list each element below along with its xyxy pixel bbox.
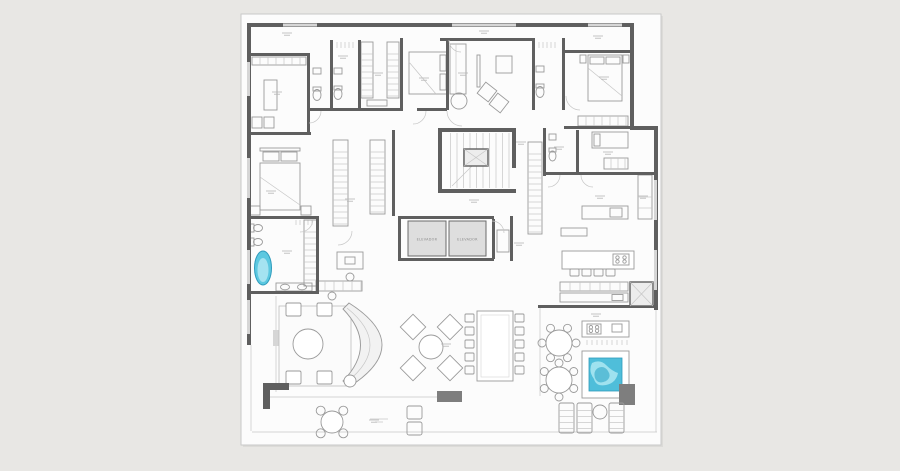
planter — [437, 391, 462, 402]
wall-part — [307, 53, 310, 132]
dining-table — [477, 311, 513, 381]
wall-part — [446, 40, 449, 110]
wall-family-top — [440, 38, 532, 41]
wall-bed-bottom — [247, 216, 319, 219]
stair-shaft — [464, 149, 488, 166]
wall-stair — [512, 128, 516, 168]
wall-wardrobe — [392, 130, 395, 216]
window — [654, 180, 657, 220]
round-table — [419, 335, 443, 359]
wall-part — [532, 38, 535, 110]
wall-elevator — [398, 219, 401, 261]
door-slider — [273, 330, 279, 346]
wall-balcony — [247, 53, 309, 56]
elevator-label: ELEVADOR — [417, 238, 438, 242]
wall-elevator — [398, 216, 494, 219]
window — [247, 158, 250, 198]
armchair — [286, 303, 301, 316]
wall-part — [330, 40, 333, 110]
side-table — [344, 375, 356, 387]
wall-balcony — [564, 50, 634, 53]
planter — [619, 384, 635, 405]
elevator-label: ELEVADOR — [457, 238, 478, 242]
wall-bedroom-bottom — [564, 126, 634, 129]
service-shaft — [630, 282, 653, 306]
wall-closet-bottom — [247, 132, 311, 135]
wall-right-step — [630, 126, 658, 130]
wall-stair — [438, 189, 516, 193]
wall-foyer — [492, 219, 495, 259]
window — [452, 24, 516, 27]
wall-corridor — [417, 108, 447, 111]
wall-kitchen-top — [546, 172, 656, 175]
window — [247, 300, 250, 334]
wall-part — [562, 38, 565, 110]
window — [588, 24, 622, 27]
wall-terrace-corner — [263, 383, 270, 409]
center-table — [293, 329, 323, 359]
bathtub-inner — [258, 258, 269, 282]
wall-right — [630, 23, 634, 130]
wall-stair — [438, 132, 442, 192]
armchair — [286, 371, 301, 384]
armchair — [317, 371, 332, 384]
wall-elevator — [398, 258, 494, 261]
wall-part — [400, 38, 403, 110]
wall-part — [358, 40, 361, 110]
window — [247, 62, 250, 96]
window — [654, 250, 657, 290]
window — [283, 24, 317, 27]
wall-stair — [438, 128, 516, 132]
wall-part — [576, 130, 579, 174]
wall-foyer — [510, 216, 513, 261]
canvas-background: ELEVADORELEVADOR — [0, 0, 900, 471]
wall-mbath — [316, 216, 319, 294]
window — [247, 250, 250, 284]
wall-corridor — [307, 108, 403, 111]
wall-mbath-bottom — [247, 291, 319, 294]
armchair — [317, 303, 332, 316]
wall-hall — [543, 128, 546, 176]
floor-plan: ELEVADORELEVADOR — [0, 0, 900, 471]
